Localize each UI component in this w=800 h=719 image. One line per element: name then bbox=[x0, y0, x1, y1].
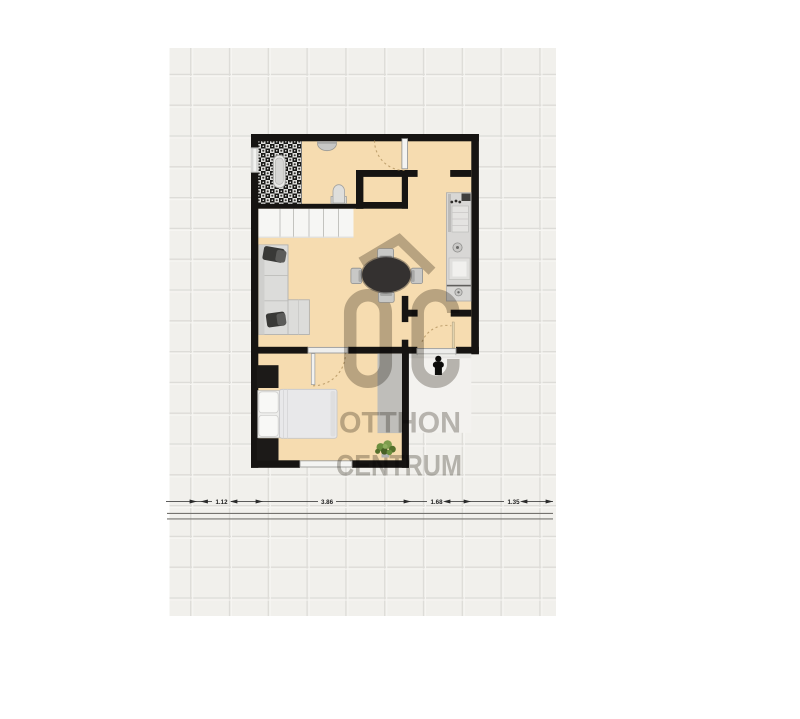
svg-text:1.35: 1.35 bbox=[507, 499, 520, 506]
svg-text:3.86: 3.86 bbox=[321, 499, 334, 506]
svg-text:1.12: 1.12 bbox=[215, 499, 228, 506]
svg-text:1.68: 1.68 bbox=[430, 499, 443, 506]
svg-text:CENTRUM: CENTRUM bbox=[336, 450, 462, 483]
svg-text:OTTHON: OTTHON bbox=[339, 407, 461, 440]
